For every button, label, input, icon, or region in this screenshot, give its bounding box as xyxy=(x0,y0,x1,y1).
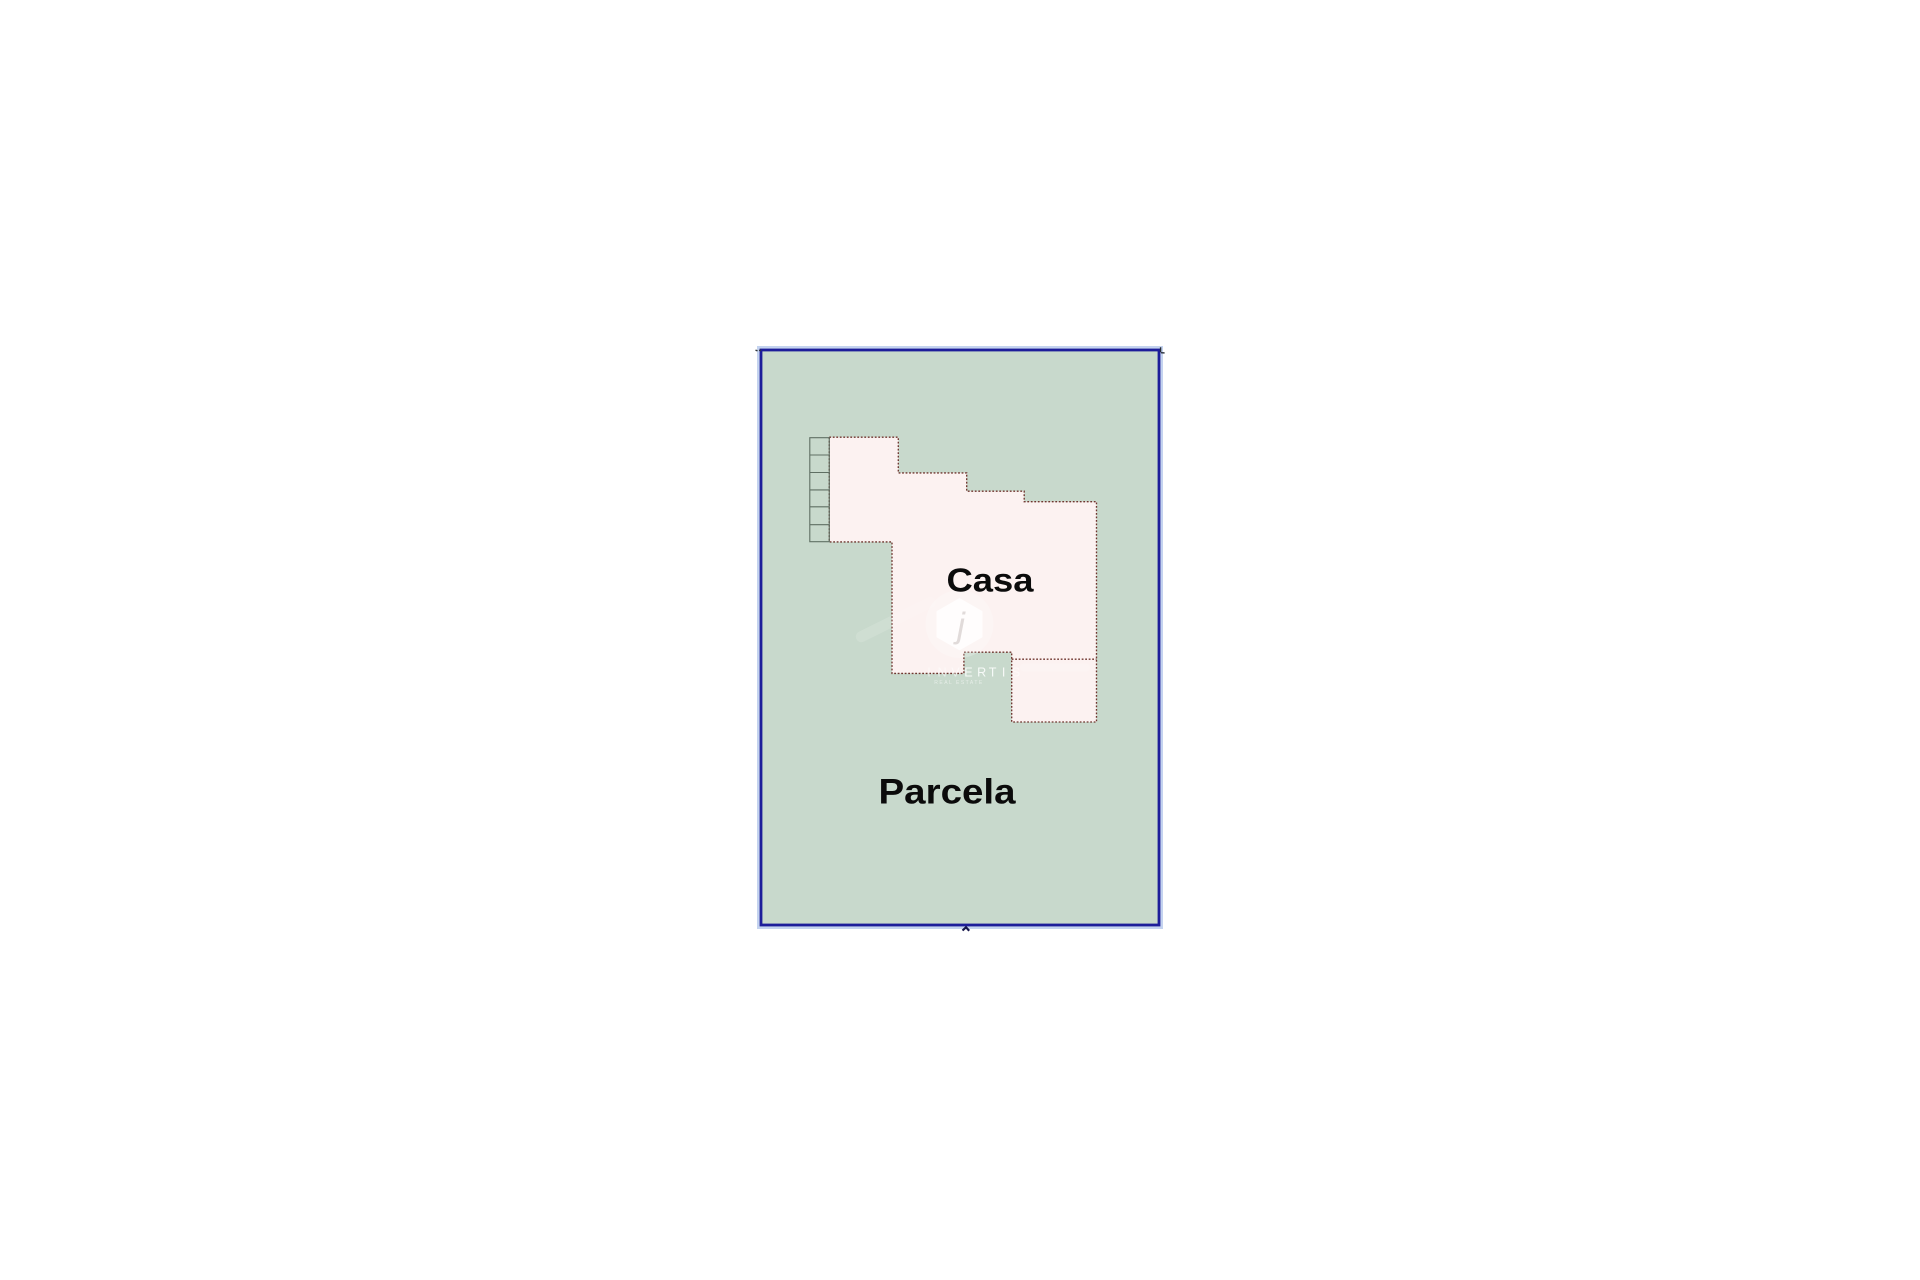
svg-text:Parcela: Parcela xyxy=(879,771,1016,811)
svg-text:S: S xyxy=(1012,665,1020,679)
svg-text:N: N xyxy=(937,665,946,679)
svg-text:E: E xyxy=(964,665,972,679)
svg-text:T: T xyxy=(989,665,997,679)
svg-text:V: V xyxy=(951,665,960,679)
svg-text:I: I xyxy=(927,665,931,679)
svg-text:Casa: Casa xyxy=(947,561,1035,598)
svg-text:R: R xyxy=(977,665,986,679)
svg-text:I: I xyxy=(1002,665,1006,679)
svg-text:REAL ESTATE: REAL ESTATE xyxy=(934,680,983,686)
